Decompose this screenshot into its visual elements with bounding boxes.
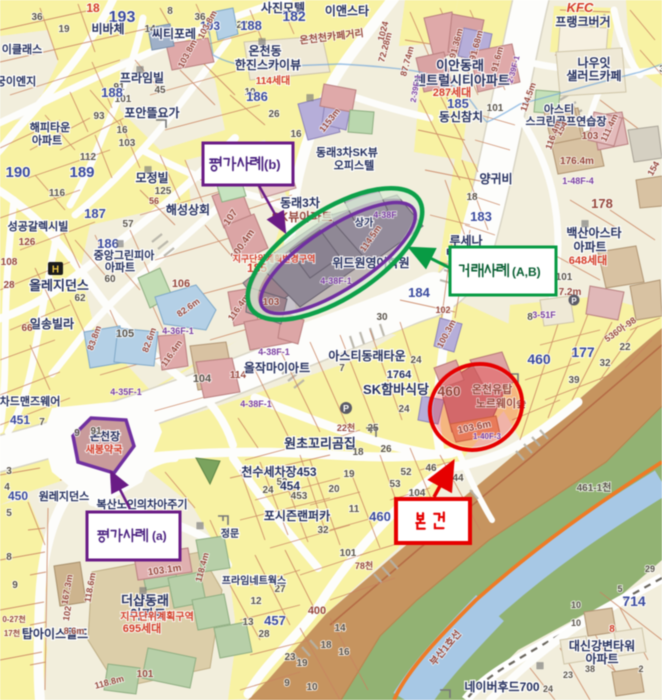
svg-text:4-38F-1: 4-38F-1 [240,399,272,409]
svg-text:38: 38 [585,664,595,674]
svg-text:182: 182 [282,8,306,24]
svg-text:▦: ▦ [536,660,545,670]
svg-text:노르웨이숲: 노르웨이숲 [476,396,527,410]
svg-text:78천: 78천 [355,561,373,571]
svg-text:451: 451 [10,413,30,427]
svg-text:대신강변타워: 대신강변타워 [569,638,635,653]
svg-text:양귀비: 양귀비 [479,171,512,186]
svg-text:8: 8 [167,6,173,17]
svg-text:샐러드카페: 샐러드카페 [566,68,621,83]
svg-text:17천: 17천 [4,628,20,638]
svg-text:▦: ▦ [144,164,153,174]
svg-text:57: 57 [122,219,134,230]
svg-text:183: 183 [470,209,492,224]
svg-text:101: 101 [340,548,357,559]
svg-text:10: 10 [571,600,581,610]
svg-text:28: 28 [3,280,15,291]
svg-text:8: 8 [609,624,615,635]
svg-text:동신참치: 동신참치 [439,109,483,124]
svg-text:187: 187 [84,206,106,221]
svg-text:52: 52 [400,467,412,478]
svg-text:14: 14 [334,623,346,634]
svg-text:해성상회: 해성상회 [166,202,210,217]
svg-text:▦: ▦ [258,36,267,46]
svg-text:19: 19 [58,24,70,35]
svg-text:184: 184 [408,285,430,300]
svg-text:4-38F-1: 4-38F-1 [258,347,290,357]
svg-text:프랭크버거: 프랭크버거 [555,14,610,29]
svg-text:10: 10 [571,618,581,628]
svg-text:H: H [52,265,59,276]
svg-text:원초꼬리곰집: 원초꼬리곰집 [284,436,356,451]
svg-text:네이버후드700: 네이버후드700 [464,679,540,694]
svg-text:186: 186 [246,89,268,104]
svg-text:아스티동래타운: 아스티동래타운 [328,348,405,363]
svg-text:일송빌라: 일송빌라 [30,316,74,331]
svg-text:190: 190 [5,164,30,181]
svg-text:8: 8 [6,552,12,563]
svg-text:올레지던스: 올레지던스 [29,278,89,293]
svg-text:P: P [343,404,349,414]
svg-text:온천유탑: 온천유탑 [472,382,512,396]
svg-text:26: 26 [268,109,280,120]
svg-text:16: 16 [290,129,302,140]
svg-text:비바체: 비바체 [91,21,124,36]
svg-text:오피스텔: 오피스텔 [334,158,374,172]
svg-text:457: 457 [264,613,286,628]
svg-text:28: 28 [258,629,270,640]
svg-text:▦: ▦ [581,218,590,228]
svg-text:원레지던스: 원레지던스 [39,489,90,503]
svg-text:8.6m: 8.6m [64,626,85,636]
svg-text:116: 116 [49,188,66,199]
svg-text:24: 24 [410,355,422,366]
svg-text:188: 188 [101,85,123,100]
svg-text:103: 103 [263,297,280,308]
svg-text:▦: ▦ [136,64,145,74]
svg-text:20: 20 [328,484,340,495]
svg-text:695세대: 695세대 [123,621,162,635]
svg-text:8: 8 [527,312,533,323]
svg-text:108: 108 [1,257,18,268]
svg-text:106: 106 [172,278,190,290]
svg-text:18: 18 [466,192,478,203]
svg-text:32: 32 [317,525,329,536]
svg-text:복산노인의차아주기: 복산노인의차아주기 [96,497,187,511]
svg-text:13: 13 [242,617,254,628]
svg-text:해피타운: 해피타운 [30,120,70,134]
svg-text:정문: 정문 [221,527,239,540]
svg-text:103: 103 [119,138,136,149]
svg-text:176.4m: 176.4m [560,156,594,167]
svg-text:9: 9 [284,678,290,689]
svg-text:32: 32 [599,358,611,369]
svg-text:46: 46 [425,463,437,474]
svg-text:(a): (a) [152,529,167,543]
svg-text:24: 24 [262,485,274,496]
svg-text:더샵동래: 더샵동래 [121,593,169,608]
svg-text:189: 189 [69,164,94,181]
svg-text:3-51F: 3-51F [532,310,556,320]
svg-text:460: 460 [369,509,391,524]
svg-text:KFC: KFC [567,0,594,15]
svg-text:4-35F-1: 4-35F-1 [110,387,142,397]
svg-text:중앙그린피아: 중앙그린피아 [94,248,156,262]
svg-text:185: 185 [447,96,469,111]
svg-text:104: 104 [193,373,212,385]
svg-text:이클래스: 이클래스 [2,42,42,56]
svg-text:▦: ▦ [196,520,205,530]
svg-text:23: 23 [284,652,296,663]
svg-text:SK함바식당: SK함바식당 [363,382,429,397]
svg-text:66: 66 [21,323,33,334]
svg-text:62: 62 [74,293,86,304]
svg-text:궁이엔지: 궁이엔지 [0,74,36,88]
svg-text:18: 18 [352,447,364,458]
svg-text:백산아스타: 백산아스타 [566,225,621,240]
svg-text:112: 112 [80,152,97,163]
svg-text:460: 460 [437,383,461,399]
svg-text:4-38F-1: 4-38F-1 [320,276,352,286]
svg-text:26: 26 [380,444,392,455]
svg-text:아스티: 아스티 [544,102,574,116]
svg-text:1764: 1764 [387,369,412,381]
svg-text:18: 18 [86,1,100,15]
svg-text:19: 19 [343,469,355,480]
svg-text:동래3차: 동래3차 [280,195,320,210]
svg-text:(b): (b) [264,157,281,172]
svg-text:93: 93 [93,111,105,122]
svg-text:126: 126 [19,237,36,248]
svg-text:10: 10 [306,682,318,693]
svg-text:포안뜰요가: 포안뜰요가 [124,105,179,120]
svg-text:나우잇: 나우잇 [577,55,610,70]
svg-text:이앤스타: 이앤스타 [325,3,369,18]
svg-text:101: 101 [556,272,573,283]
svg-text:이안동래: 이안동래 [436,58,484,73]
svg-text:22천: 22천 [337,423,355,433]
svg-text:460: 460 [527,351,551,367]
svg-text:102: 102 [435,305,450,315]
svg-text:91: 91 [90,426,102,437]
svg-text:3: 3 [6,466,12,477]
svg-text:(A,B): (A,B) [512,265,541,279]
svg-text:101: 101 [137,669,154,680]
svg-text:450: 450 [8,489,28,503]
svg-text:아파트: 아파트 [32,133,62,147]
svg-text:400: 400 [308,605,326,617]
svg-text:23: 23 [563,670,573,680]
svg-text:동래3차SK뷰: 동래3차SK뷰 [316,145,378,159]
svg-text:아파트: 아파트 [105,260,135,274]
svg-text:44: 44 [452,473,464,484]
svg-text:0-27천: 0-27천 [2,614,25,624]
svg-text:461-1천: 461-1천 [577,481,612,494]
svg-text:4: 4 [4,482,10,493]
svg-text:101: 101 [487,103,504,114]
svg-text:4-36F-1: 4-36F-1 [162,326,194,336]
svg-text:포시즌랜퍼카: 포시즌랜퍼카 [264,508,330,523]
svg-text:114세대: 114세대 [256,74,291,87]
svg-text:차드맨즈웨어: 차드맨즈웨어 [0,394,60,408]
svg-text:24: 24 [398,404,410,415]
svg-text:714: 714 [622,593,646,609]
svg-text:45: 45 [154,85,166,96]
svg-text:프라임네트웍스: 프라임네트웍스 [222,574,286,587]
svg-text:12: 12 [250,596,262,607]
svg-text:올작마이아트: 올작마이아트 [244,360,310,375]
svg-text:성공갈렉시빌: 성공갈렉시빌 [8,219,69,233]
svg-text:453: 453 [291,491,308,502]
svg-text:60: 60 [104,274,116,285]
svg-text:18: 18 [320,640,332,651]
svg-text:24: 24 [543,684,553,694]
svg-text:5: 5 [6,508,12,519]
svg-text:▦: ▦ [139,585,148,595]
svg-text:36: 36 [31,12,43,23]
svg-text:▦: ▦ [306,92,315,102]
svg-text:7: 7 [339,363,345,374]
svg-text:19: 19 [296,658,308,669]
svg-text:103: 103 [582,131,599,142]
svg-text:지구단위계획구역: 지구단위계획구역 [120,610,194,623]
svg-text:30: 30 [376,312,388,323]
svg-text:29: 29 [645,564,655,574]
svg-text:22: 22 [619,342,631,353]
svg-text:105: 105 [116,328,134,340]
svg-text:P: P [571,297,577,306]
svg-text:1-48F-4: 1-48F-4 [562,176,594,186]
svg-text:2: 2 [638,664,643,674]
svg-text:9: 9 [74,428,80,439]
svg-text:16: 16 [116,125,128,136]
svg-text:648세대: 648세대 [569,253,608,267]
svg-text:56: 56 [149,196,159,206]
svg-text:11: 11 [349,504,360,515]
svg-text:5: 5 [617,584,622,594]
svg-text:한진스카이뷰: 한진스카이뷰 [235,57,301,72]
svg-text:178: 178 [591,196,613,211]
svg-text:센트럴시티아파트: 센트럴시티아파트 [414,73,510,88]
svg-text:9: 9 [12,580,18,591]
svg-text:▦: ▦ [116,238,125,248]
svg-text:새봉약국: 새봉약국 [86,443,123,456]
svg-text:39: 39 [568,375,580,386]
svg-text:7: 7 [39,417,45,428]
svg-text:4-38F: 4-38F [373,210,397,220]
svg-text:16: 16 [338,647,350,658]
svg-text:188: 188 [240,18,262,33]
svg-text:177: 177 [571,344,595,360]
svg-text:53: 53 [389,479,401,490]
svg-text:1-40F-3: 1-40F-3 [473,432,502,441]
svg-text:아파트: 아파트 [573,239,606,254]
